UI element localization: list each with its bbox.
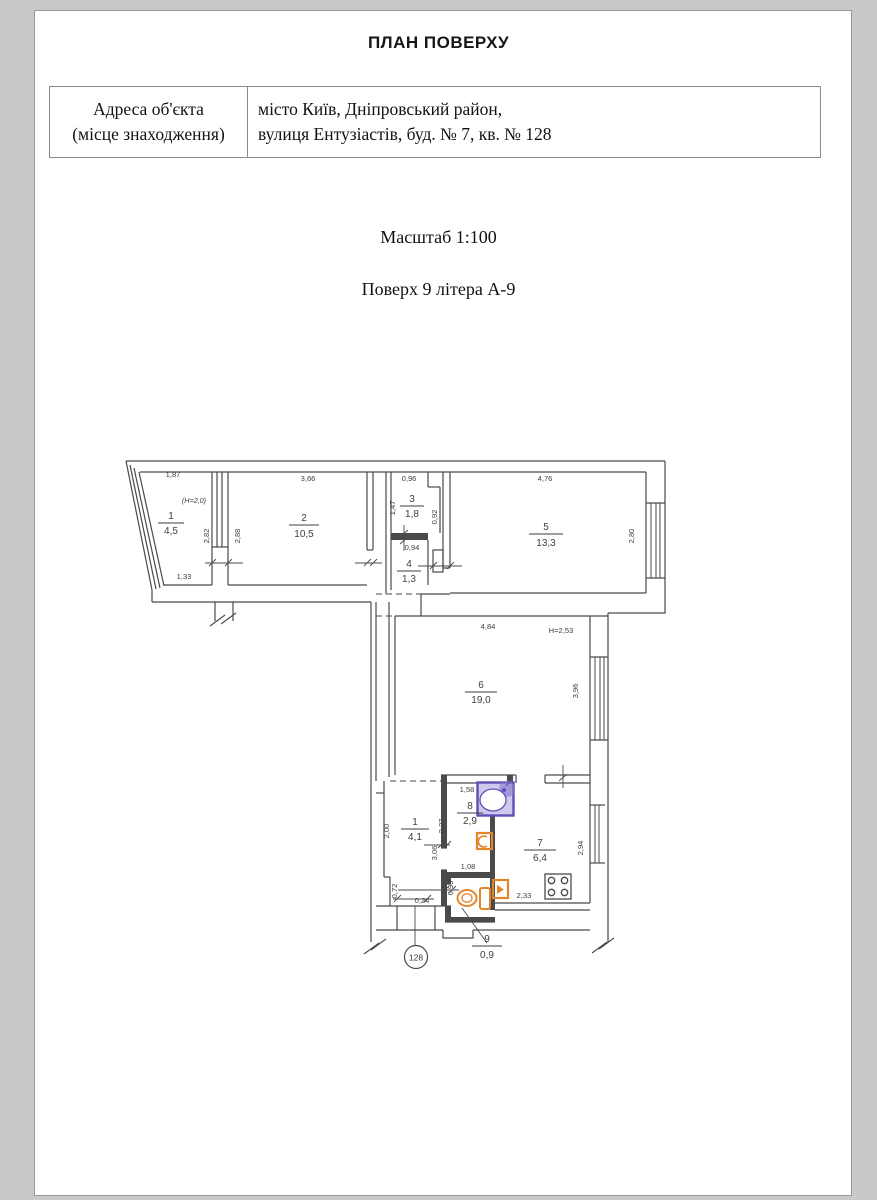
- room-label-9: 9 0,9: [472, 934, 502, 961]
- svg-text:4,1: 4,1: [408, 832, 422, 843]
- svg-text:5: 5: [543, 522, 549, 533]
- room-label-balcony: 1 4,5: [158, 511, 184, 537]
- dim-r3-top: 0,96: [402, 474, 417, 483]
- apartment-number-badge: 128: [405, 946, 428, 969]
- svg-text:0,9: 0,9: [480, 950, 494, 961]
- dim-r9-left: 0,93: [446, 881, 455, 896]
- svg-text:1,3: 1,3: [402, 574, 416, 585]
- dim-bal-bottom: 1,33: [177, 572, 192, 581]
- svg-text:2: 2: [301, 513, 307, 524]
- room-label-4: 4 1,3: [397, 559, 421, 585]
- stove-icon: [545, 874, 571, 899]
- dim-hall-left2: 0,72: [390, 884, 399, 899]
- kitchen-sink-icon: [493, 880, 508, 898]
- svg-text:9: 9: [484, 934, 490, 945]
- apartment-number: 128: [409, 953, 423, 963]
- floor-plan-drawing: 128 1 4,5 2 10,5 3 1,8 4 1,3 5 13,3: [0, 0, 877, 1200]
- room-label-7: 7 6,4: [524, 838, 556, 864]
- dim-r7-right: 2,94: [576, 841, 585, 856]
- svg-text:6,4: 6,4: [533, 853, 547, 864]
- svg-text:1: 1: [168, 511, 174, 522]
- dim-r3-left: 1,47: [388, 501, 397, 516]
- svg-text:2,9: 2,9: [463, 816, 477, 827]
- svg-text:1,8: 1,8: [405, 509, 419, 520]
- thick-walls: [391, 533, 513, 922]
- svg-text:7: 7: [537, 838, 543, 849]
- dim-r8-left: 2,27: [437, 819, 446, 834]
- washbasin-icon: [477, 833, 492, 849]
- dim-r6-right: 3,96: [571, 684, 580, 699]
- svg-text:4: 4: [406, 559, 412, 570]
- svg-text:4,5: 4,5: [164, 526, 178, 537]
- dim-hall-right: 3,06: [430, 846, 439, 861]
- dim-hall-left: 2,00: [382, 824, 391, 839]
- svg-text:1: 1: [412, 817, 418, 828]
- dim-hall-bottom: 0,24: [415, 896, 430, 905]
- room-label-hall: 1 4,1: [401, 817, 429, 843]
- svg-text:6: 6: [478, 680, 484, 691]
- ceiling-height-note: Н=2,53: [549, 626, 574, 635]
- dim-r5-right: 2,80: [627, 529, 636, 544]
- dim-bal-top: 1,87: [166, 470, 181, 479]
- room-labels: 1 4,5 2 10,5 3 1,8 4 1,3 5 13,3 6 19,0: [158, 494, 563, 961]
- dim-bal-right: 2,82: [202, 529, 211, 544]
- dashed-openings: [376, 594, 441, 781]
- svg-text:19,0: 19,0: [471, 695, 491, 706]
- svg-text:3: 3: [409, 494, 415, 505]
- window-hatches: [595, 503, 660, 863]
- dim-r4-top: 0,94: [405, 543, 420, 552]
- room-label-6: 6 19,0: [465, 680, 497, 706]
- dim-r5-top: 4,76: [538, 474, 553, 483]
- svg-text:13,3: 13,3: [536, 538, 556, 549]
- room-label-5: 5 13,3: [529, 522, 563, 549]
- svg-text:10,5: 10,5: [294, 529, 314, 540]
- room-label-2: 2 10,5: [289, 513, 319, 540]
- corner-bath-icon: [478, 779, 516, 816]
- room-label-3: 3 1,8: [400, 494, 424, 520]
- balcony-height-note: (Н=2,0): [182, 496, 206, 505]
- dim-r2-left: 2,88: [233, 529, 242, 544]
- dim-r8-top: 1,58: [460, 785, 475, 794]
- dim-r6-top: 4,84: [481, 622, 496, 631]
- toilet-icon: [458, 888, 491, 909]
- svg-text:8: 8: [467, 801, 473, 812]
- dim-r7-bottom: 2,33: [517, 891, 532, 900]
- dim-r2-top: 3,66: [301, 474, 316, 483]
- dim-r3-right: 0,92: [430, 510, 439, 525]
- dim-r8-bottom: 1,08: [461, 862, 476, 871]
